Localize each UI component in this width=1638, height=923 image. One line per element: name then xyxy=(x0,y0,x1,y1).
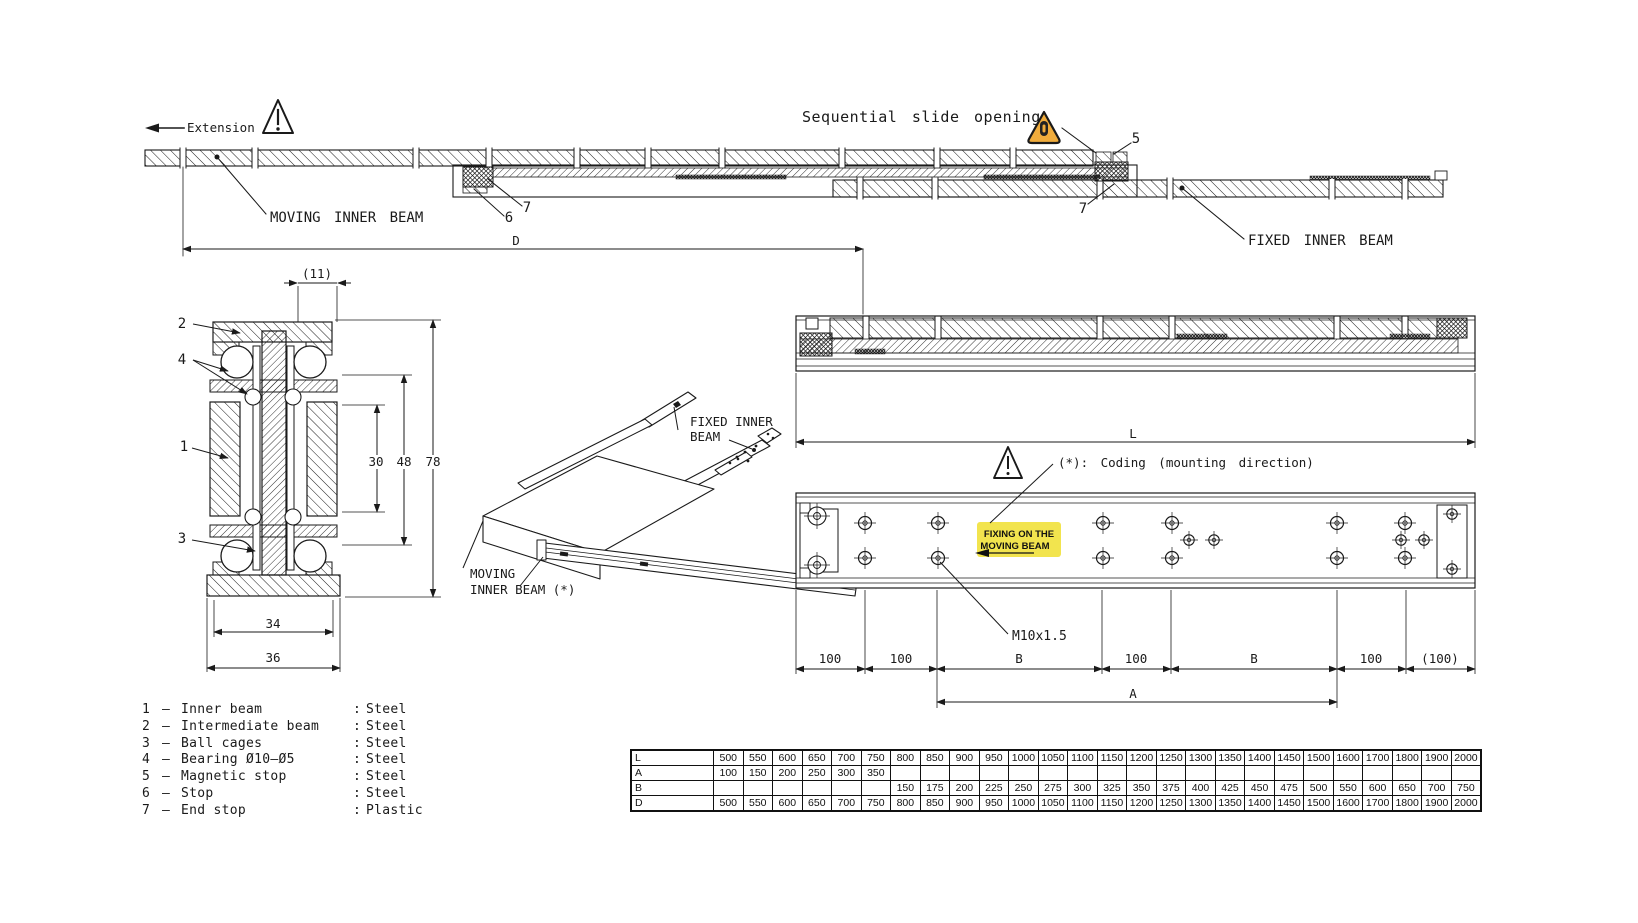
iso-fixed-beam-label-1: FIXED INNER xyxy=(690,414,773,429)
sequential-note: Sequential slide opening xyxy=(802,108,1041,126)
size-table-cell: 550 xyxy=(743,750,773,766)
size-table-cell: 700 xyxy=(832,750,862,766)
callout-7: 7 xyxy=(523,200,531,216)
moving-inner-beam-strip xyxy=(145,150,1093,166)
size-table-cell xyxy=(773,781,803,796)
size-table-cell: 650 xyxy=(802,750,832,766)
plan-dim-6: (100) xyxy=(1421,651,1459,666)
callout-2: 2 xyxy=(178,316,186,332)
size-table-cell xyxy=(950,766,980,781)
dim-48-label: 48 xyxy=(396,454,411,469)
size-table-row-label: L xyxy=(631,750,714,766)
size-table-cell: 750 xyxy=(1451,781,1481,796)
size-table-cell xyxy=(1274,766,1304,781)
size-table-cell: 300 xyxy=(1068,781,1098,796)
size-table-cell xyxy=(1068,766,1098,781)
size-table-cell: 2000 xyxy=(1451,796,1481,812)
dim-d-label: D xyxy=(512,233,520,248)
size-table-cell xyxy=(1333,766,1363,781)
size-table-cell: 1100 xyxy=(1068,750,1098,766)
dim-a-label: A xyxy=(1129,686,1137,701)
size-table-cell: 850 xyxy=(920,750,950,766)
plan-dim-1: 100 xyxy=(890,651,913,666)
callout-5: 5 xyxy=(1132,131,1140,147)
fixing-note-line2: MOVING BEAM xyxy=(980,541,1049,552)
size-table-cell: 450 xyxy=(1245,781,1275,796)
plan-dim-0: 100 xyxy=(819,651,842,666)
dim-78-label: 78 xyxy=(425,454,440,469)
callout-1: 1 xyxy=(180,439,188,455)
iso-fixed-rail-back xyxy=(641,392,696,427)
size-table-row: D500550600650700750800850900950100010501… xyxy=(631,796,1481,812)
size-table-cell: 350 xyxy=(1127,781,1157,796)
drawing-canvas: Extension Sequential slide opening MOVIN… xyxy=(0,0,1638,923)
size-table-cell xyxy=(1392,766,1422,781)
warning-triangle-icon xyxy=(263,100,293,133)
size-table-cell: 175 xyxy=(920,781,950,796)
top-extended-view xyxy=(145,100,1447,314)
size-table-cell: 475 xyxy=(1274,781,1304,796)
dim-36-label: 36 xyxy=(265,650,280,665)
parts-list: 1–Inner beam:Steel2–Intermediate beam:St… xyxy=(142,702,423,820)
size-table-cell xyxy=(743,781,773,796)
size-table-cell: 150 xyxy=(891,781,921,796)
size-table-cell: 250 xyxy=(802,766,832,781)
size-table-cell: 700 xyxy=(832,796,862,812)
callout-4: 4 xyxy=(178,352,186,368)
size-table-cell: 1300 xyxy=(1186,750,1216,766)
size-table-cell xyxy=(714,781,744,796)
size-table-cell xyxy=(1009,766,1039,781)
size-table-cell xyxy=(1363,766,1393,781)
size-table-cell: 1250 xyxy=(1156,750,1186,766)
coding-note: (*): Coding (mounting direction) xyxy=(1058,455,1314,470)
size-table-cell: 1150 xyxy=(1097,796,1127,812)
size-table-cell: 1050 xyxy=(1038,796,1068,812)
dim-11-label: (11) xyxy=(302,266,332,281)
dim-30-label: 30 xyxy=(368,454,383,469)
plan-dim-2: B xyxy=(1015,651,1023,666)
size-table-row-label: B xyxy=(631,781,714,796)
size-table-cell: 1400 xyxy=(1245,750,1275,766)
size-table-cell: 150 xyxy=(743,766,773,781)
size-table-cell: 500 xyxy=(1304,781,1334,796)
fixing-note-line1: FIXING ON THE xyxy=(984,529,1054,540)
size-table-cell: 1800 xyxy=(1392,750,1422,766)
size-table-cell: 1800 xyxy=(1392,796,1422,812)
size-table: L500550600650700750800850900950100010501… xyxy=(630,749,1482,812)
size-table-cell: 600 xyxy=(1363,781,1393,796)
size-table-cell: 1400 xyxy=(1245,796,1275,812)
size-table-cell: 1600 xyxy=(1333,796,1363,812)
size-table-cell: 500 xyxy=(714,750,744,766)
size-table-cell xyxy=(1245,766,1275,781)
size-table-cell: 1300 xyxy=(1186,796,1216,812)
size-table-cell: 275 xyxy=(1038,781,1068,796)
size-table-cell: 100 xyxy=(714,766,744,781)
size-table-cell xyxy=(1127,766,1157,781)
size-table-cell: 1350 xyxy=(1215,796,1245,812)
fixed-inner-beam-strip xyxy=(833,180,1443,197)
size-table-cell: 900 xyxy=(950,750,980,766)
plan-view xyxy=(796,447,1475,708)
size-table-cell xyxy=(1186,766,1216,781)
size-table-cell: 375 xyxy=(1156,781,1186,796)
size-table-cell xyxy=(802,781,832,796)
size-table-row: L500550600650700750800850900950100010501… xyxy=(631,750,1481,766)
warning-triangle-icon xyxy=(994,447,1022,478)
size-table-row: B150175200225250275300325350375400425450… xyxy=(631,781,1481,796)
callout-7b: 7 xyxy=(1079,201,1087,217)
size-table-cell xyxy=(1451,766,1481,781)
size-table-cell: 300 xyxy=(832,766,862,781)
size-table-cell: 1000 xyxy=(1009,796,1039,812)
size-table-row-label: A xyxy=(631,766,714,781)
magnetic-stop-block xyxy=(800,333,832,356)
dim-l-label: L xyxy=(1129,426,1137,441)
size-table-cell: 200 xyxy=(950,781,980,796)
size-table-cell: 1350 xyxy=(1215,750,1245,766)
size-table-cell: 750 xyxy=(861,796,891,812)
size-table-cell: 650 xyxy=(802,796,832,812)
size-table-cell xyxy=(861,781,891,796)
parts-list-item: 3–Ball cages:Steel xyxy=(142,736,423,753)
parts-list-item: 7–End stop:Plastic xyxy=(142,803,423,820)
size-table-body: L500550600650700750800850900950100010501… xyxy=(631,750,1481,811)
size-table-cell xyxy=(1422,766,1452,781)
size-table-cell: 1900 xyxy=(1422,750,1452,766)
size-table-cell xyxy=(1304,766,1334,781)
size-table-cell xyxy=(1215,766,1245,781)
size-table-cell xyxy=(1097,766,1127,781)
size-table-cell: 1000 xyxy=(1009,750,1039,766)
plan-dim-5: 100 xyxy=(1360,651,1383,666)
callout-3: 3 xyxy=(178,531,186,547)
fixed-inner-beam-label: FIXED INNER BEAM xyxy=(1248,233,1393,249)
size-table-cell xyxy=(891,766,921,781)
size-table-cell: 750 xyxy=(861,750,891,766)
size-table-cell: 425 xyxy=(1215,781,1245,796)
size-table-cell: 1450 xyxy=(1274,750,1304,766)
size-table-cell: 550 xyxy=(1333,781,1363,796)
size-table-cell: 500 xyxy=(714,796,744,812)
parts-list-item: 2–Intermediate beam:Steel xyxy=(142,719,423,736)
size-table-cell: 800 xyxy=(891,750,921,766)
size-table-cell: 350 xyxy=(861,766,891,781)
plan-dim-3: 100 xyxy=(1125,651,1148,666)
size-table-row: A100150200250300350 xyxy=(631,766,1481,781)
size-table-cell: 2000 xyxy=(1451,750,1481,766)
parts-list-item: 5–Magnetic stop:Steel xyxy=(142,769,423,786)
size-table-cell: 225 xyxy=(979,781,1009,796)
size-table-cell: 1700 xyxy=(1363,750,1393,766)
size-table-cell: 1100 xyxy=(1068,796,1098,812)
size-table-cell: 250 xyxy=(1009,781,1039,796)
size-table-cell: 1250 xyxy=(1156,796,1186,812)
size-table-cell xyxy=(979,766,1009,781)
parts-list-item: 6–Stop:Steel xyxy=(142,786,423,803)
plan-dim-4: B xyxy=(1250,651,1258,666)
bearing-ball xyxy=(221,346,253,378)
size-table-cell: 325 xyxy=(1097,781,1127,796)
size-table-cell: 1700 xyxy=(1363,796,1393,812)
size-table-cell: 600 xyxy=(773,750,803,766)
dim-34-label: 34 xyxy=(265,616,280,631)
callout-6: 6 xyxy=(505,210,513,226)
bearing-ball xyxy=(294,540,326,572)
size-table-cell: 400 xyxy=(1186,781,1216,796)
iso-moving-beam-label-1: MOVING xyxy=(470,566,515,581)
size-table-cell: 650 xyxy=(1392,781,1422,796)
extension-arrow xyxy=(145,124,184,133)
size-table-cell: 950 xyxy=(979,750,1009,766)
magnetic-stop-block xyxy=(1437,318,1467,338)
size-table-cell: 850 xyxy=(920,796,950,812)
size-table-cell: 1500 xyxy=(1304,796,1334,812)
size-table-cell: 800 xyxy=(891,796,921,812)
size-table-cell: 1200 xyxy=(1127,796,1157,812)
bearing-ball xyxy=(221,540,253,572)
size-table-cell: 1050 xyxy=(1038,750,1068,766)
size-table-cell: 1600 xyxy=(1333,750,1363,766)
size-table-cell xyxy=(1038,766,1068,781)
iso-moving-beam-label-2: INNER BEAM (*) xyxy=(470,582,575,597)
size-table-cell xyxy=(1156,766,1186,781)
size-table-cell: 200 xyxy=(773,766,803,781)
magnetic-stop-block xyxy=(1095,162,1128,181)
thread-spec-label: M10x1.5 xyxy=(1012,629,1067,644)
size-table-row-label: D xyxy=(631,796,714,812)
size-table-cell: 1450 xyxy=(1274,796,1304,812)
iso-fixed-beam-label-2: BEAM xyxy=(690,429,720,444)
size-table-cell: 1500 xyxy=(1304,750,1334,766)
moving-inner-beam-label: MOVING INNER BEAM xyxy=(270,210,423,226)
extension-label: Extension xyxy=(187,120,255,135)
size-table-cell xyxy=(832,781,862,796)
size-table-cell: 700 xyxy=(1422,781,1452,796)
size-table-cell: 1200 xyxy=(1127,750,1157,766)
size-table-cell xyxy=(920,766,950,781)
cross-section-view xyxy=(192,283,445,672)
bearing-ball xyxy=(294,346,326,378)
size-table-cell: 550 xyxy=(743,796,773,812)
size-table-cell: 900 xyxy=(950,796,980,812)
stop-block xyxy=(463,167,493,187)
size-table-cell: 600 xyxy=(773,796,803,812)
parts-list-item: 4–Bearing Ø10–Ø5:Steel xyxy=(142,752,423,769)
size-table-cell: 1900 xyxy=(1422,796,1452,812)
size-table-cell: 950 xyxy=(979,796,1009,812)
size-table-cell: 1150 xyxy=(1097,750,1127,766)
parts-list-item: 1–Inner beam:Steel xyxy=(142,702,423,719)
